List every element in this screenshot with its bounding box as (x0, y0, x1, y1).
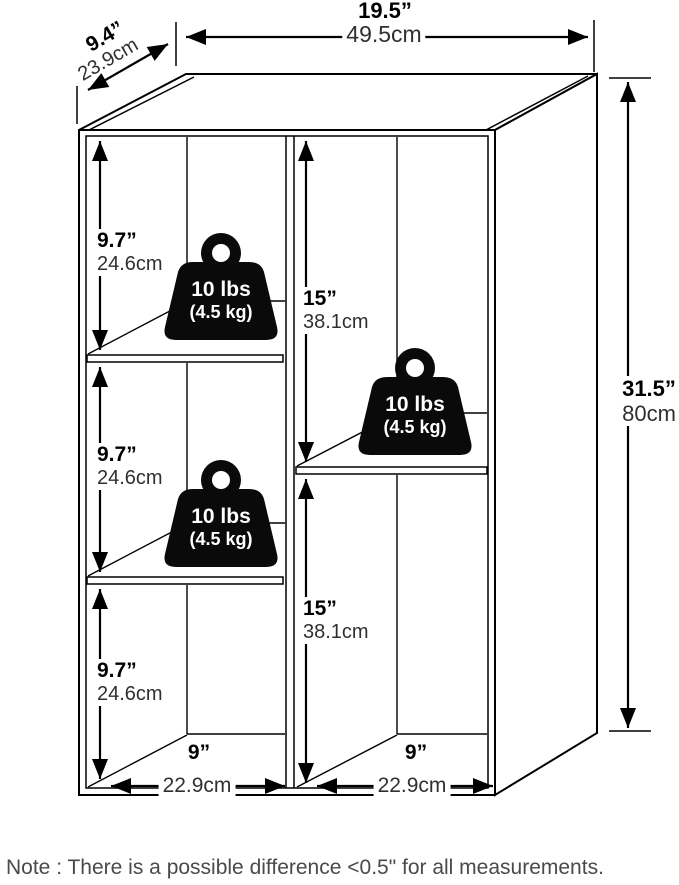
weight-limit-sublabel: (4.5 kg) (189, 302, 252, 322)
top-width-cm-label: 49.5cm (342, 21, 425, 47)
furniture-dimension-diagram: 10 lbs (4.5 kg) 10 lbs (4.5 kg) 10 lbs (… (0, 0, 679, 885)
weight-body (164, 489, 277, 567)
shelf-board (87, 577, 283, 584)
top-width-inches-label: 19.5” (358, 0, 412, 22)
weight-limit-label: 10 lbs (191, 278, 251, 301)
left-cell-3-cm-label: 24.6cm (93, 683, 167, 706)
right-cell-1-cm-label: 38.1cm (299, 311, 373, 334)
left-cell-1-inches-label: 9.7” (93, 229, 141, 253)
left-cell-width-cm-label: 22.9cm (159, 774, 236, 798)
weight-handle-hole (212, 471, 230, 489)
weight-limit-label: 10 lbs (385, 393, 445, 416)
right-cell-2-inches-label: 15” (299, 597, 341, 621)
shelf-board (296, 467, 487, 474)
weight-limit-sublabel: (4.5 kg) (383, 417, 446, 437)
weight-body (358, 377, 471, 455)
height-cm-label: 80cm (618, 401, 679, 426)
right-cell-1-inches-label: 15” (299, 287, 341, 311)
left-cell-3-inches-label: 9.7” (93, 659, 141, 683)
weight-handle-hole (406, 359, 424, 377)
right-cell-width-inches-label: 9” (405, 742, 427, 764)
weight-limit-sublabel: (4.5 kg) (189, 529, 252, 549)
shelf-board (87, 355, 283, 362)
left-cell-1-cm-label: 24.6cm (93, 253, 167, 276)
right-cell-width-cm-label: 22.9cm (374, 774, 451, 798)
right-cell-2-cm-label: 38.1cm (299, 621, 373, 644)
left-cell-width-inches-label: 9” (188, 742, 210, 764)
cabinet-side-face (495, 74, 597, 795)
left-cell-2-inches-label: 9.7” (93, 443, 141, 467)
weight-body (164, 262, 277, 340)
left-cell-2-cm-label: 24.6cm (93, 467, 167, 490)
height-inches-label: 31.5” (618, 376, 679, 401)
weight-limit-label: 10 lbs (191, 505, 251, 528)
weight-handle-hole (212, 244, 230, 262)
measurement-tolerance-note: Note : There is a possible difference <0… (6, 856, 604, 880)
